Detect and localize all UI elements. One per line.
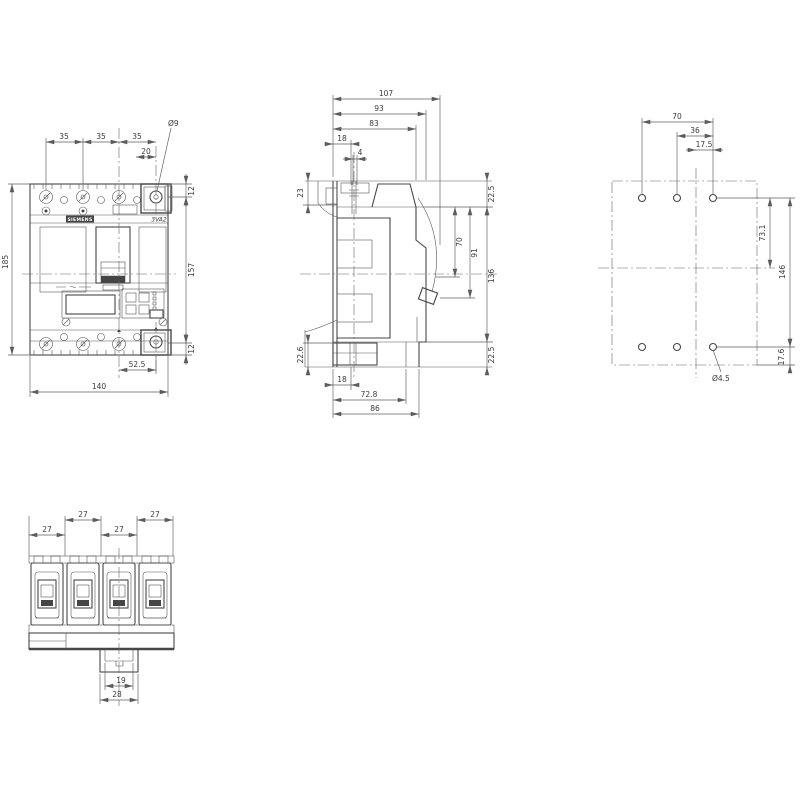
dim-drill-hole-dia: Ø4.5 bbox=[712, 374, 730, 383]
dim-front-height-overall: 185 bbox=[1, 255, 10, 270]
dimension-drawing: SIEMENS 3VA2 bbox=[0, 0, 800, 800]
dim-drill-span-70: 70 bbox=[672, 112, 682, 121]
dim-drill-v-176: 17.6 bbox=[777, 348, 786, 365]
dim-side-bottom-728: 72.8 bbox=[361, 390, 378, 399]
dim-front-clamp-offset: 20 bbox=[141, 147, 151, 156]
dim-front-margin-top: 12 bbox=[187, 186, 196, 196]
front-view-body: SIEMENS 3VA2 bbox=[22, 128, 176, 378]
side-view: 107 93 83 18 4 23 22.6 22.5 136 bbox=[296, 89, 497, 418]
dim-side-depth-overall: 107 bbox=[379, 89, 394, 98]
breaker-outline-dashed bbox=[612, 181, 757, 365]
dim-side-right-70: 70 bbox=[455, 237, 464, 247]
bottom-view-dimensions: 27 27 27 27 19 28 bbox=[29, 510, 173, 704]
side-view-dimensions: 107 93 83 18 4 23 22.6 22.5 136 bbox=[296, 89, 496, 418]
top-clamp-terminal bbox=[141, 184, 172, 213]
front-view: SIEMENS 3VA2 bbox=[1, 119, 196, 397]
dim-side-right-bottom-225: 22.5 bbox=[487, 346, 496, 363]
dim-front-pitch-2: 35 bbox=[96, 132, 106, 141]
dim-side-bottom-18: 18 bbox=[337, 375, 347, 384]
dim-drill-span-175: 17.5 bbox=[696, 140, 713, 149]
dim-front-terminal-hole: Ø9 bbox=[168, 119, 179, 128]
dim-side-top-18: 18 bbox=[337, 134, 347, 143]
dim-side-left-23: 23 bbox=[296, 188, 305, 198]
mounting-holes bbox=[639, 195, 717, 351]
trip-unit bbox=[56, 286, 164, 318]
dim-bottom-pitch-1: 27 bbox=[42, 525, 52, 534]
dim-front-width-overall: 140 bbox=[92, 382, 107, 391]
brand-label: SIEMENS bbox=[67, 217, 92, 223]
dim-side-bottom-86: 86 bbox=[370, 404, 380, 413]
bottom-view: 27 27 27 27 19 28 bbox=[29, 510, 174, 706]
dim-side-right-91: 91 bbox=[470, 248, 479, 258]
handle-side bbox=[418, 288, 437, 305]
dim-front-margin-bottom: 12 bbox=[187, 344, 196, 354]
dim-bottom-pitch-3: 27 bbox=[114, 525, 124, 534]
dim-bottom-pitch-2: 27 bbox=[78, 510, 88, 519]
dim-bottom-pitch-4: 27 bbox=[150, 510, 160, 519]
dim-drill-span-36: 36 bbox=[690, 126, 700, 135]
dim-side-right-top-225: 22.5 bbox=[487, 185, 496, 202]
drill-pattern-view: 70 36 17.5 73.1 146 17.6 Ø4.5 bbox=[598, 112, 795, 383]
dim-drill-v-146: 146 bbox=[778, 265, 787, 280]
dim-front-center-to-clamp: 52.5 bbox=[129, 360, 146, 369]
toggle-handle bbox=[96, 227, 130, 290]
dim-bottom-notch-19: 19 bbox=[116, 676, 126, 685]
side-view-profile bbox=[300, 152, 497, 380]
dim-side-right-136: 136 bbox=[487, 269, 496, 284]
model-label: 3VA2 bbox=[151, 217, 167, 224]
dimension-drawing-page: SIEMENS 3VA2 bbox=[0, 0, 800, 800]
dim-drill-v-731: 73.1 bbox=[758, 224, 767, 241]
dim-side-left-226: 22.6 bbox=[296, 346, 305, 363]
dim-front-height-mid: 157 bbox=[187, 263, 196, 278]
dim-side-depth-93: 93 bbox=[374, 104, 384, 113]
dim-bottom-tab-28: 28 bbox=[112, 690, 122, 699]
dim-front-pitch-3: 35 bbox=[132, 132, 142, 141]
bottom-view-body bbox=[29, 548, 174, 706]
dim-side-top-4: 4 bbox=[358, 148, 363, 157]
dim-front-pitch-1: 35 bbox=[59, 132, 69, 141]
dim-side-depth-83: 83 bbox=[369, 119, 379, 128]
drill-pattern-dimensions: 70 36 17.5 73.1 146 17.6 Ø4.5 bbox=[642, 112, 795, 383]
